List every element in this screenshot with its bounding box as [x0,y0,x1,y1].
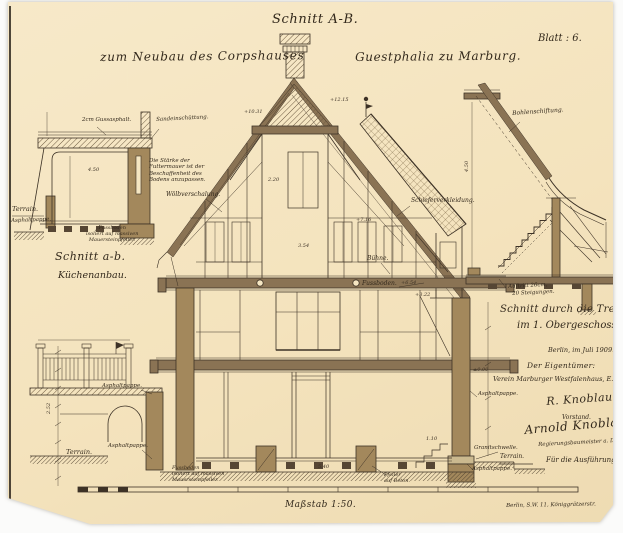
main-floor-line: Mauersteinpfeiler. [172,478,224,484]
kitchen-note-line: Futtermauer ist der [149,164,206,170]
label-terrain-right: Terrain. [500,454,524,461]
subtitle-left: zum Neubau des Corpshauses [100,49,305,65]
paper-surface: 36 Schnitt A-B. Blatt : 6. zum Neubau de… [0,0,623,533]
subtitle-right: Guestphalia zu Marburg. [355,50,521,65]
date-line: Berlin, im Juli 1909. [548,347,614,354]
linework-svg [0,0,623,533]
owner-heading: Der Eigentümer: [527,362,595,371]
pier-note-line: auf Beton. [384,479,410,485]
label-asphaltpappe-arch: Asphaltpappe. [108,443,148,449]
scale-label: Maßstab 1:50. [285,500,356,510]
execution-heading: Für die Ausführung: [546,456,618,464]
pier-note: Pfeiler auf Beton. [384,473,410,485]
owner-name: Verein Marburger Westfalenhaus, E.V. [493,376,619,383]
label-asphaltpappe-right-bottom: Asphaltpappe. [472,466,512,472]
main-floor-note: Fussboden isoliert auf massiven Mauerste… [172,466,224,483]
label-fussboden: Fussboden. [362,281,397,288]
kitchen-section-subtitle: Küchenanbau. [58,271,127,282]
stair-section-drawing [464,83,614,315]
label-buehne: Bühne. [367,256,388,263]
kitchen-floor-note: Fussboden isoliert auf massiven Mauerste… [86,226,138,243]
scale-bar [78,487,578,492]
label-gussasphalt: 2cm Gussasphalt. [82,117,131,123]
stair-section-title-line1: Schnitt durch die Treppe [500,304,623,316]
kitchen-note-line: Bodens anzupassen. [149,177,206,183]
label-granitschwelle: Granitschwelle. [474,445,518,451]
label-schieferverkleidung: Schieferverkleidung. [411,198,475,205]
kitchen-floor-line: Mauersteinpfeiler. [86,238,138,244]
scanned-drawing-sheet: 36 Schnitt A-B. Blatt : 6. zum Neubau de… [0,0,623,533]
label-asphaltpappe-right-top: Asphaltpappe. [478,391,518,397]
edge-mark: 36 [0,26,1,34]
kitchen-note-line: Beschaffenheit des [149,171,206,177]
kitchen-section-title: Schnitt a-b. [55,251,126,264]
stair-section-title-line2: im 1. Obergeschoss. [517,320,620,332]
label-woelbverschalung: Wölbverschalung. [166,192,220,199]
label-terrain-left: Terrain. [66,449,92,456]
label-terrain-kitchen: Terrain. [12,206,38,213]
paper: 36 Schnitt A-B. Blatt : 6. zum Neubau de… [0,0,623,533]
label-asphaltpappe-fence: Asphaltpappe. [102,383,142,389]
sheet-number: Blatt : 6. [538,33,582,45]
kitchen-note: Die Stärke der Futtermauer ist der Besch… [149,158,206,183]
drawing-title: Schnitt A-B. [272,13,358,28]
